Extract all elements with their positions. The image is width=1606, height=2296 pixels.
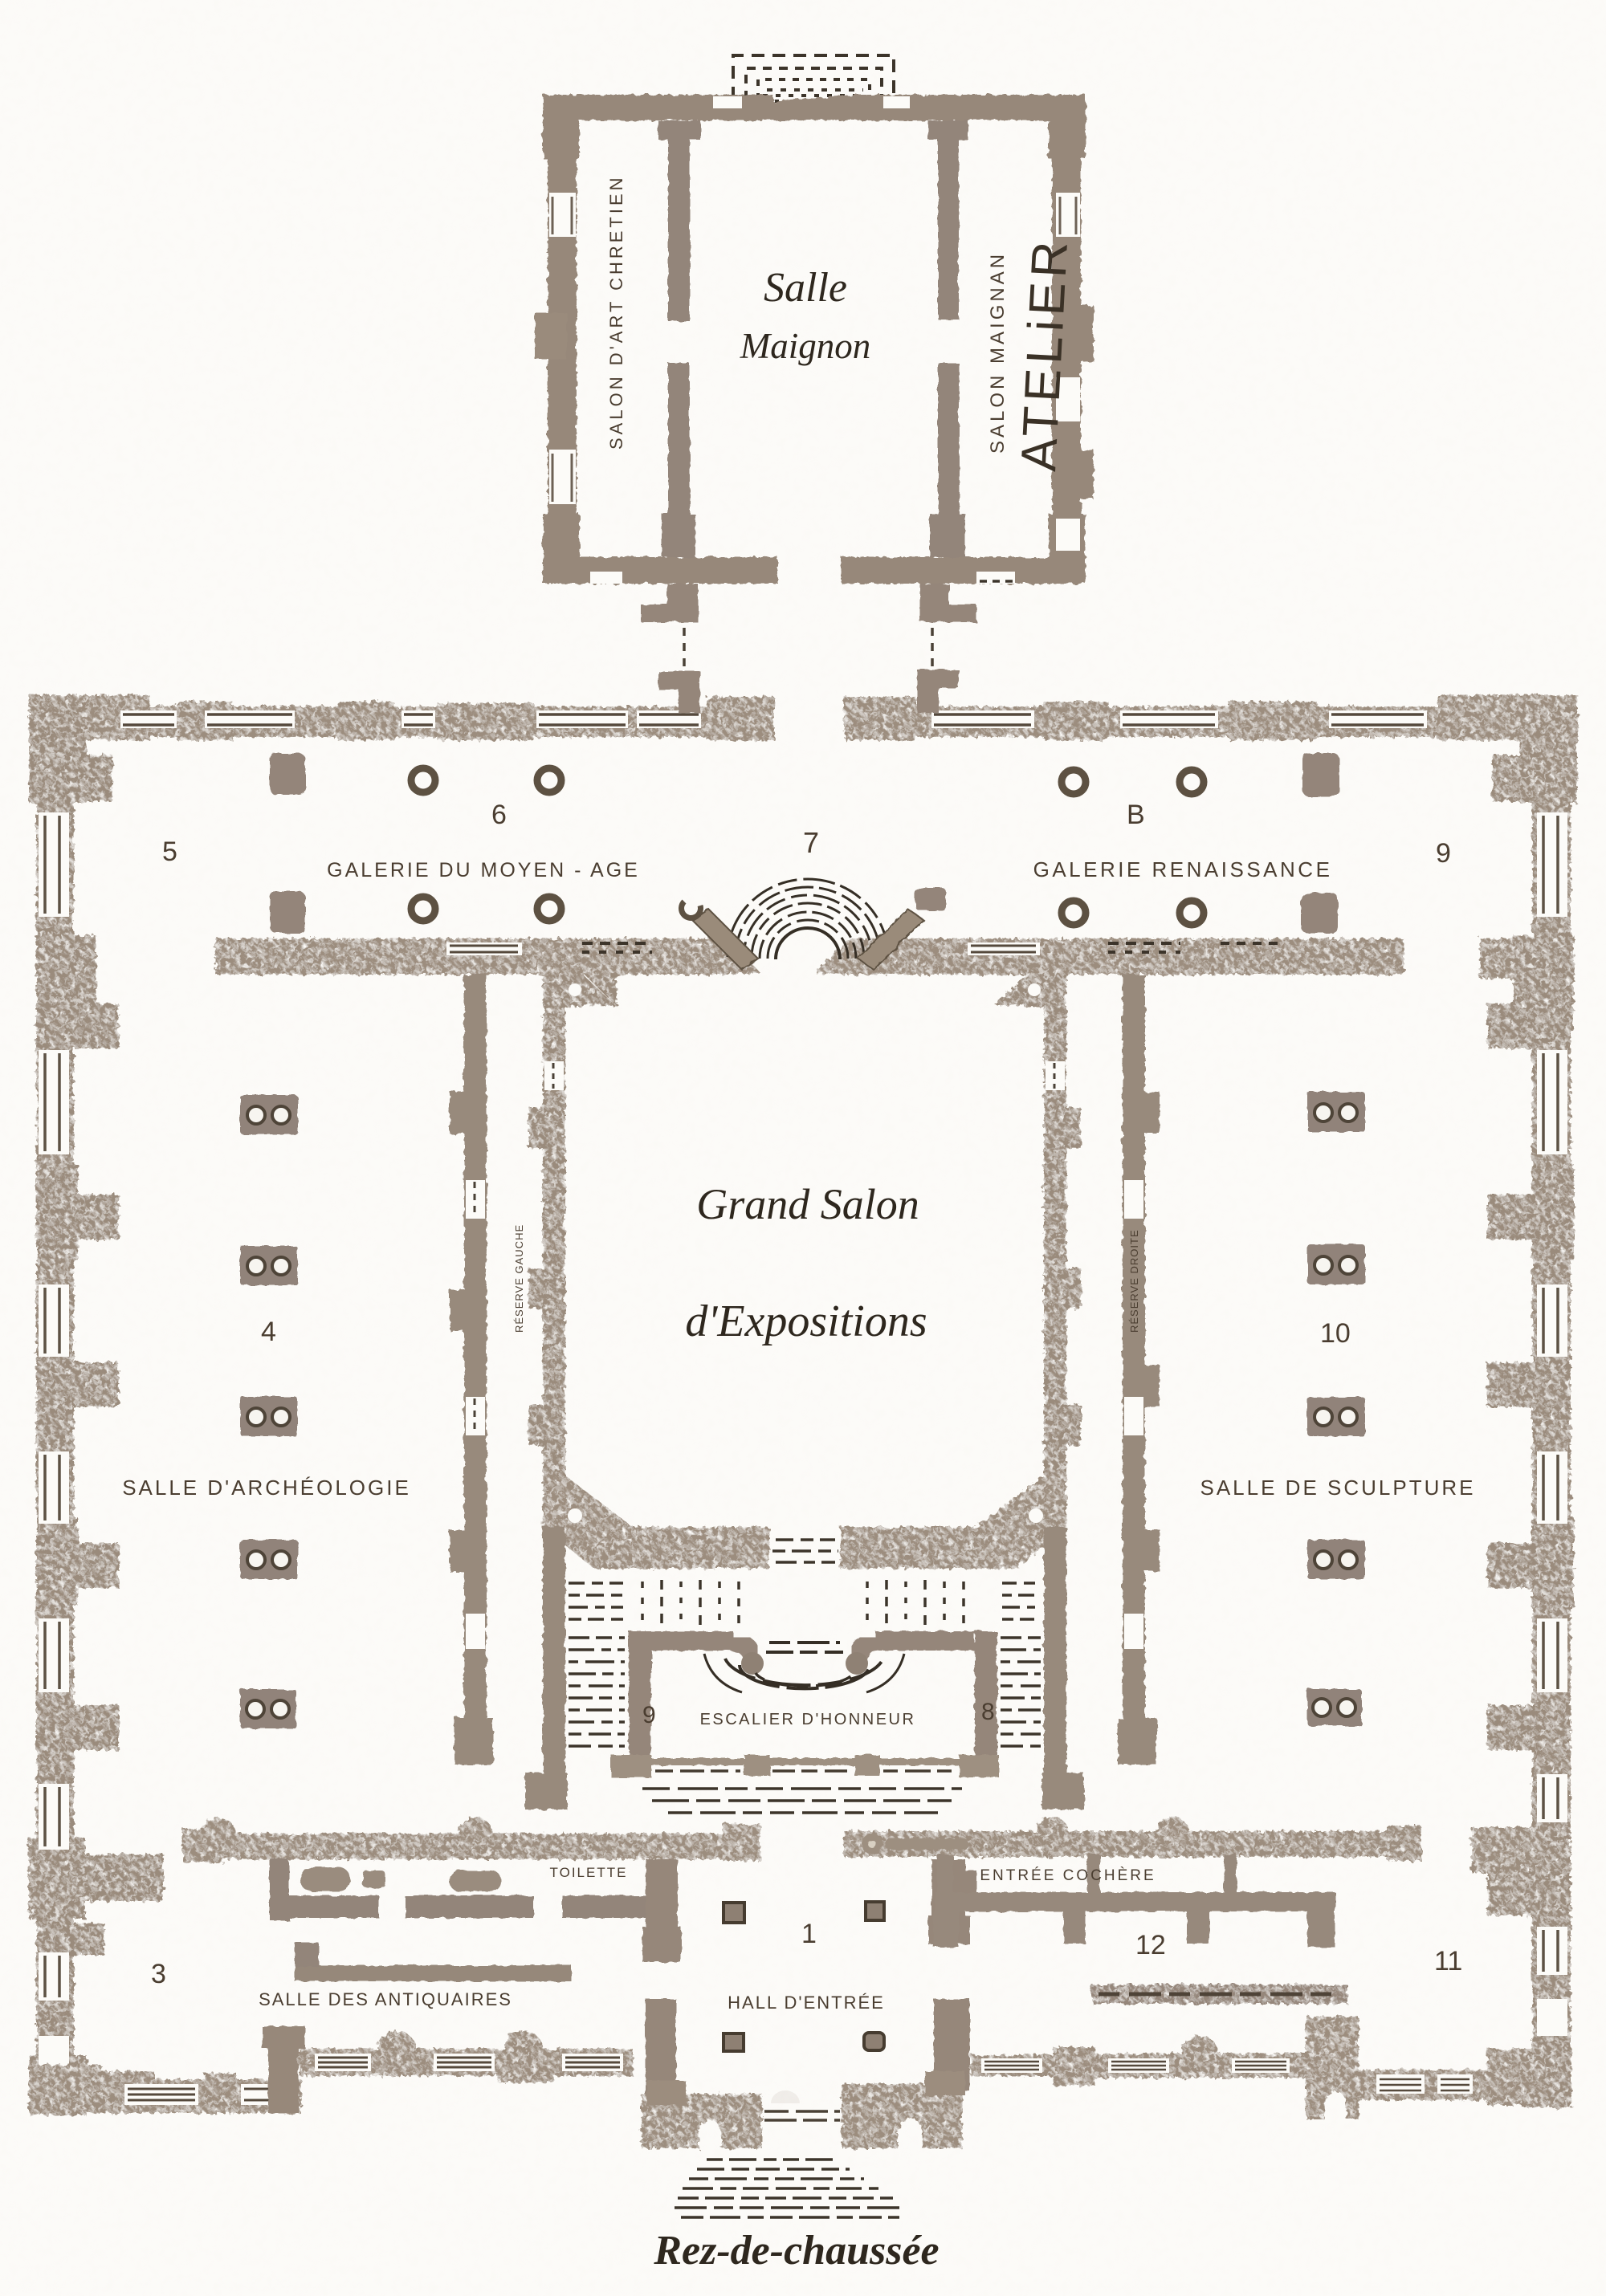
svg-text:Maignon: Maignon: [740, 326, 871, 366]
svg-text:GALERIE RENAISSANCE: GALERIE RENAISSANCE: [1033, 857, 1333, 881]
svg-text:9: 9: [642, 1702, 656, 1728]
svg-text:RÉSERVE GAUCHE: RÉSERVE GAUCHE: [513, 1224, 525, 1333]
svg-text:B: B: [1127, 800, 1145, 830]
svg-text:5: 5: [162, 837, 177, 867]
svg-text:RÉSERVE DROITE: RÉSERVE DROITE: [1128, 1229, 1140, 1333]
svg-text:Grand Salon: Grand Salon: [696, 1180, 919, 1228]
svg-text:SALLE DE SCULPTURE: SALLE DE SCULPTURE: [1200, 1476, 1476, 1500]
svg-text:SALLE DES ANTIQUAIRES: SALLE DES ANTIQUAIRES: [259, 1989, 512, 2009]
svg-text:Rez-de-chaussée: Rez-de-chaussée: [653, 2228, 939, 2274]
svg-text:GALERIE DU MOYEN - AGE: GALERIE DU MOYEN - AGE: [327, 859, 640, 881]
svg-text:4: 4: [261, 1317, 276, 1347]
svg-text:TOILETTE: TOILETTE: [550, 1865, 628, 1880]
svg-text:ESCALIER D'HONNEUR: ESCALIER D'HONNEUR: [700, 1711, 916, 1728]
svg-text:3: 3: [151, 1959, 166, 1989]
svg-text:SALON MAIGNAN: SALON MAIGNAN: [987, 251, 1009, 454]
svg-text:10: 10: [1320, 1318, 1351, 1349]
svg-text:9: 9: [1436, 838, 1451, 869]
svg-text:11: 11: [1434, 1946, 1462, 1976]
svg-text:1: 1: [801, 1919, 817, 1949]
svg-text:SALON D'ART CHRETIEN: SALON D'ART CHRETIEN: [606, 174, 626, 450]
svg-text:8: 8: [981, 1699, 995, 1725]
svg-text:7: 7: [803, 826, 819, 859]
svg-text:ENTRÉE COCHÈRE: ENTRÉE COCHÈRE: [980, 1867, 1156, 1884]
svg-text:12: 12: [1135, 1930, 1166, 1960]
svg-text:6: 6: [491, 800, 507, 830]
svg-text:HALL D'ENTRÉE: HALL D'ENTRÉE: [728, 1993, 885, 2013]
svg-text:d'Expositions: d'Expositions: [685, 1297, 927, 1346]
svg-text:SALLE D'ARCHÉOLOGIE: SALLE D'ARCHÉOLOGIE: [122, 1476, 411, 1500]
svg-text:Salle: Salle: [764, 265, 847, 311]
